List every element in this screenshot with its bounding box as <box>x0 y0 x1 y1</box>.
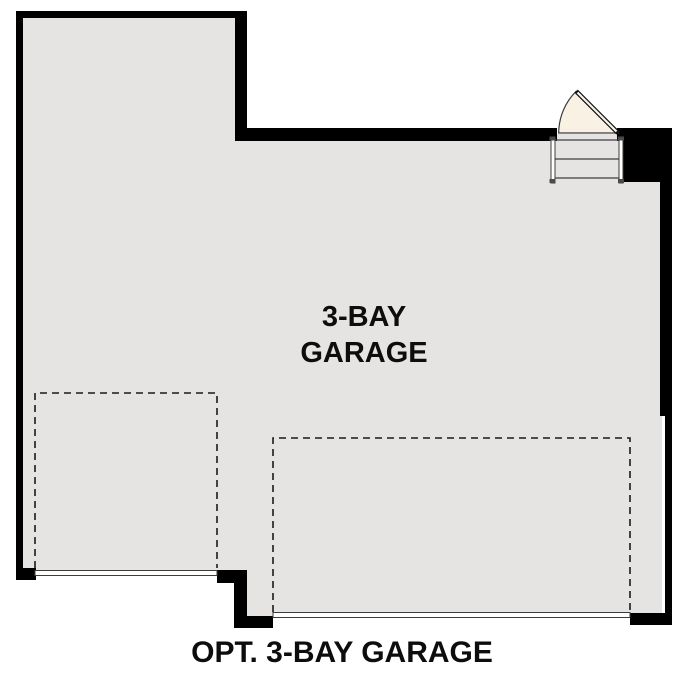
garage-door-opening-left <box>35 571 217 576</box>
room-label-line1: 3-BAY <box>322 301 406 333</box>
wall-corner-block <box>623 128 672 182</box>
wall-bottom-right-stub <box>630 613 672 625</box>
wall-mid-horizontal <box>235 128 557 141</box>
wall-bottom-left-stub <box>16 568 36 580</box>
jamb-cap <box>618 179 624 183</box>
jamb-cap <box>618 137 624 141</box>
plan-caption: OPT. 3-BAY GARAGE <box>191 636 493 669</box>
door-jamb-left <box>551 139 555 183</box>
wall-left <box>16 11 23 580</box>
garage-door-opening-right <box>273 613 630 618</box>
jamb-cap <box>550 179 556 183</box>
wall-upper-right-vertical <box>235 11 247 141</box>
door-jamb-right <box>619 139 623 183</box>
wall-step-horizontal-b <box>234 616 273 628</box>
jamb-cap <box>550 137 556 141</box>
wall-right-upper <box>660 176 672 416</box>
wall-right-lower <box>665 413 672 625</box>
floor-plan: 3-BAY GARAGE OPT. 3-BAY GARAGE <box>0 0 687 687</box>
floor-plan-drawing: 3-BAY GARAGE OPT. 3-BAY GARAGE <box>0 0 687 687</box>
wall-top <box>16 11 247 18</box>
room-label-line2: GARAGE <box>300 337 427 369</box>
